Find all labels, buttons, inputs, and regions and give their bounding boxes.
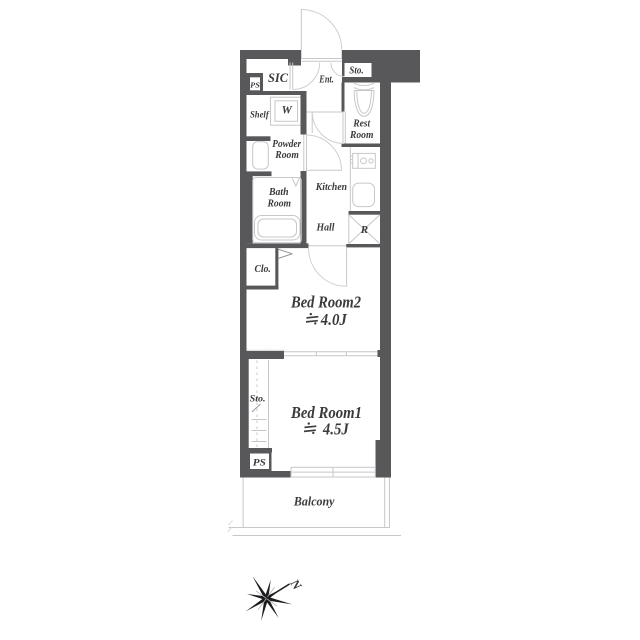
svg-text:Room: Room (267, 198, 291, 209)
svg-text:4.5J: 4.5J (322, 419, 349, 438)
svg-text:R: R (360, 224, 368, 236)
svg-text:Shelf: Shelf (250, 111, 269, 121)
svg-text:Bath: Bath (268, 187, 289, 198)
svg-text:PS: PS (250, 81, 260, 90)
svg-text:Room: Room (274, 150, 298, 161)
svg-text:Balcony: Balcony (293, 495, 335, 509)
svg-text:Hall: Hall (316, 222, 336, 234)
svg-text:Powder: Powder (272, 139, 302, 150)
svg-text:W: W (282, 105, 293, 117)
svg-text:Clo.: Clo. (255, 264, 271, 275)
svg-text:Ent.: Ent. (319, 74, 334, 85)
svg-text:Rest: Rest (352, 118, 371, 129)
svg-text:4.0J: 4.0J (320, 310, 348, 329)
svg-text:Sto.: Sto. (349, 66, 363, 77)
svg-text:Kitchen: Kitchen (315, 181, 347, 193)
svg-text:Sto.: Sto. (250, 395, 266, 405)
svg-text:PS: PS (253, 459, 266, 469)
svg-text:SIC: SIC (268, 71, 289, 85)
svg-text:Room: Room (349, 130, 373, 141)
